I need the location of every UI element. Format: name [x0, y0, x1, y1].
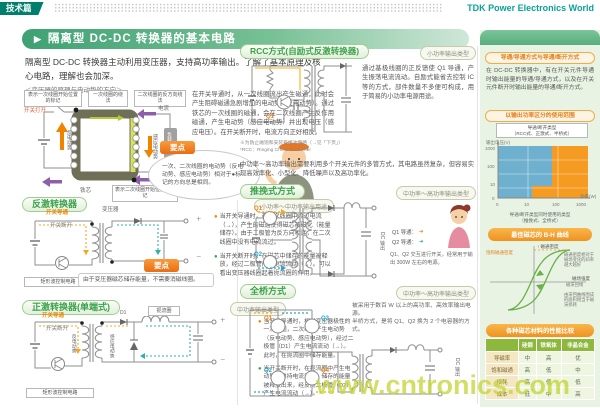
q2-transistor	[264, 256, 277, 269]
woman-bun	[464, 205, 471, 212]
fullbridge-title: 全桥方式	[240, 284, 296, 299]
bh-annotation-1: 磁通密度相对于磁场变化的斜率越大越好	[564, 252, 598, 267]
table-header-row: 硅钢 铁氧体 非晶合金	[486, 339, 595, 352]
q1-arrowhead	[281, 209, 286, 215]
off-arrowhead	[155, 250, 161, 255]
choke-coil	[344, 203, 360, 208]
flyback-point-note: 由于变压器磁芯储存能量，不需要消磁线圈。	[78, 273, 214, 287]
legend-q2: Q2 导通：➜	[392, 238, 423, 246]
bullet-dot-icon: ●	[214, 253, 218, 279]
core	[300, 208, 303, 274]
legend-q1-arrow-icon: ➜	[419, 229, 424, 235]
chart-callout: 导通/断开类型 （RCC式、正激式、半桥式）	[496, 123, 588, 138]
woman-eye2	[461, 216, 463, 218]
off-current-path	[140, 326, 190, 356]
pushpull-section: 推挽式方式 中功率～高功率输出类型	[240, 184, 476, 282]
q1-label: Q1	[254, 206, 263, 212]
core-ring	[76, 114, 134, 176]
sidebar-pill-modes: 导通/导通方式与导通/断开方式	[485, 52, 595, 64]
cell: 优	[561, 352, 594, 364]
bh-curve-up	[508, 250, 570, 310]
secondary-coil-top	[306, 212, 312, 239]
xtick-10: 10	[524, 202, 530, 207]
primary-coil-top	[292, 212, 298, 239]
pushpull-dc-out-label: DC 输出	[379, 232, 385, 251]
q2-transistor	[271, 371, 285, 385]
q1-transistor	[271, 319, 285, 333]
secondary-winding-label: 二次线圈的反方向绕法	[134, 90, 186, 107]
forward-switch-on-label: 开关导通	[42, 313, 64, 320]
capacitor	[341, 98, 351, 102]
base-capacitor	[294, 102, 298, 110]
q3-transistor	[305, 319, 319, 333]
legend-q1: Q1 导通：➜	[392, 228, 423, 236]
secondary-coil	[318, 70, 324, 94]
legend-q1-text: Q1 导通：	[392, 228, 417, 236]
rcc-note2: *RCC：Ringing Choke Converter	[240, 148, 311, 154]
resistor	[267, 70, 273, 89]
ytick-0: 0	[492, 196, 495, 201]
flyback-transformer-label: 变压器	[102, 207, 119, 214]
choke-coil	[142, 316, 169, 322]
pushpull-legend: Q1 导通：➜ Q2 导通：➜	[392, 228, 423, 248]
battery	[30, 344, 40, 348]
forward-d1-label: D1	[120, 310, 126, 316]
bh-left-label: 饱和磁通密度	[486, 249, 513, 256]
table-row: 导磁率 中 高 优	[486, 352, 595, 364]
induced-emf-label: 感应电动势	[152, 134, 158, 159]
xtick-100: 100	[552, 202, 560, 207]
flyback-switch-on-label: 开关导通	[46, 210, 68, 217]
dot-mark-secondary	[100, 321, 104, 325]
cell: 高	[536, 352, 561, 364]
choke-coil	[408, 345, 424, 350]
battery	[246, 350, 254, 354]
battery	[248, 96, 256, 100]
on-arrowhead	[83, 250, 89, 255]
primary-winding-label: 一次线圈的绕法	[88, 90, 128, 107]
cell: 中	[519, 352, 536, 364]
output-minus-terminal	[212, 360, 216, 364]
forward-title: 正激转换器(单端式)	[22, 300, 120, 315]
sidebar-header-band	[480, 30, 600, 45]
output-plus-terminal	[372, 206, 376, 210]
primary-coil	[304, 70, 310, 94]
capacitor	[361, 232, 371, 236]
diode-top	[328, 205, 334, 211]
ytick-1000: 1000	[485, 146, 496, 151]
battery	[30, 241, 40, 245]
current-label: 电流	[158, 106, 169, 113]
output-minus-label: －	[220, 358, 226, 365]
forward-choke-label: 扼流圈	[148, 306, 180, 316]
forward-switch-off-label: 开关断开	[46, 326, 68, 333]
diode	[134, 218, 141, 224]
primary-coil	[92, 227, 99, 259]
core	[312, 66, 315, 132]
chart-caption-line2: （推挽式、全桥式）	[519, 218, 560, 223]
table-col-ferrite: 铁氧体	[536, 339, 561, 352]
q2-label: Q2	[264, 368, 273, 374]
pushpull-badge: 中功率～高功率输出类型	[396, 186, 476, 200]
power-range-chart: 输出电压(V) 1000 100 10 0 0 10 100 1000 功率(W…	[484, 138, 596, 210]
rcc-body: 通过基极线圈的正反馈使 Q1 导通，产生振荡电流流动。自励式能省去控制 IC 等…	[362, 64, 474, 102]
switch-transistor	[52, 358, 65, 371]
bullet-dot-icon: ●	[214, 213, 218, 248]
bh-curve-header: 最佳磁芯的 B-H 曲线	[488, 228, 592, 241]
bh-x-label: 磁场强度	[572, 275, 590, 282]
bh-arrow-up	[536, 270, 544, 276]
legend-q2-text: Q2 导通：	[392, 238, 417, 246]
principle-point-tag: 要点	[160, 141, 195, 154]
woman-dress	[448, 227, 470, 248]
diode-d1	[120, 319, 127, 325]
capacitor	[160, 235, 168, 238]
chart-caption: 导通/断开类型同时使用的类型 （推挽式、全桥式）	[488, 212, 592, 223]
switch-open-label: 开关打开	[24, 108, 46, 115]
off-current-path	[117, 225, 158, 255]
primary-coil-bottom	[292, 242, 298, 268]
principle-point-text: 一次、二次线圈的电动势（反电动势、感应电动势）相对于●标记的方向总是相同。	[162, 163, 246, 187]
diode	[340, 63, 346, 69]
q1-label: Q1	[266, 114, 275, 120]
off-arrowhead	[140, 353, 145, 359]
section-tag: 技术篇	[0, 2, 44, 15]
rcc-section: RCC方式(自励式反激转换器) 小功率输出类型 Q1 通过基极线圈的正反馈使 Q…	[240, 44, 476, 156]
legend-q2-arrow-icon: ➜	[419, 239, 424, 245]
chart-callout-line1: 导通/断开类型	[528, 125, 557, 130]
ytick-10: 10	[490, 182, 496, 187]
switch-transistor	[56, 257, 69, 270]
secondary-coil-bottom	[306, 242, 312, 268]
brand-title: TDK Power Electronics World	[467, 3, 594, 13]
back-emf-label: 反电动势	[66, 130, 72, 150]
output-plus-terminal	[212, 320, 216, 324]
chart-callout-line2: （RCC式、正激式、半桥式）	[512, 131, 573, 136]
title-arrow-icon: ▶	[34, 34, 42, 44]
bh-annotation-3: 由滞回曲线围成的面积相当于磁滞损耗	[564, 292, 598, 307]
chart-xlabel: 功率(W)	[580, 193, 596, 200]
output-plus-terminal	[438, 348, 442, 352]
table-col-amorphous: 非晶合金	[561, 339, 594, 352]
primary-coil	[82, 326, 89, 358]
xtick-1000: 1000	[576, 202, 587, 207]
oscillation-path	[255, 68, 300, 90]
secondary-coil	[105, 227, 112, 259]
diode	[390, 347, 396, 353]
q2-label: Q2	[254, 252, 263, 258]
q3-label: Q3	[321, 316, 330, 322]
primary-start-mark	[74, 108, 79, 113]
chart-caption-line1: 导通/断开类型同时使用的类型	[510, 212, 571, 217]
rcc-circuit-svg: Q1	[240, 62, 356, 138]
q1-transistor	[264, 212, 277, 225]
battery	[38, 140, 50, 144]
magazine-page: 技术篇 TDK Power Electronics World ▶隔离型 DC-…	[0, 0, 600, 408]
fullbridge-badge: 中功率～高功率输出类型	[396, 286, 476, 300]
woman-illustration	[442, 202, 476, 248]
rcc-badge: 小功率输出类型	[420, 46, 476, 60]
sidebar-pill-range: 以输出功率区分的使用范围	[485, 110, 595, 122]
dot-mark-primary	[80, 321, 84, 325]
table-col-blank	[486, 339, 519, 352]
forward-induced-emf-label: 感应电动势	[108, 334, 114, 358]
woman-eye	[455, 216, 457, 218]
output-minus-label: －	[196, 255, 202, 262]
forward-back-emf-label: 反电动势	[70, 334, 76, 353]
battery	[252, 238, 260, 242]
bh-top-label: ↑ 磁通密度	[537, 243, 559, 250]
output-plus-terminal	[184, 219, 188, 223]
sidebar-text-modes: 在 DC-DC 转换器中，有在开关元件导通时输出能量的导通/导通方式，以及在开关…	[486, 67, 594, 93]
xtick-0: 0	[496, 202, 499, 207]
material-table-header: 各种磁芯材料的性能比较	[486, 324, 594, 337]
base-winding	[304, 106, 310, 118]
secondary-coil	[95, 326, 102, 358]
bh-curve-down	[508, 250, 570, 310]
secondary-start-mark	[132, 178, 137, 183]
flyback-switch-off-label: 开关断开	[50, 223, 72, 230]
core	[100, 223, 103, 263]
pushpull-caption: Q1、Q2 交互进行开关，经常用于输出 300W 左右的电源。	[390, 252, 474, 267]
column-divider-right	[477, 46, 478, 404]
page-title: 隔离型 DC-DC 转换器的基本电路	[48, 33, 236, 45]
primary-mark-label: 表示一次线圈开始位置的标记	[24, 90, 82, 107]
output-minus-terminal	[372, 274, 376, 278]
dot-mark-secondary	[110, 260, 114, 264]
core-label: 铁芯	[80, 188, 91, 195]
row-label: 导磁率	[486, 352, 519, 364]
q1-transistor	[277, 95, 291, 109]
table-col-silicon-steel: 硅钢	[519, 339, 536, 352]
q2-arrowhead	[281, 265, 286, 271]
output-minus-terminal	[184, 259, 188, 263]
watermark: www.cntronics.com	[316, 370, 570, 401]
pushpull-circuit-svg: Q1 Q2	[240, 202, 390, 280]
q1-label: Q1	[264, 316, 273, 322]
output-plus-label: ＋	[220, 318, 226, 325]
dot-mark-primary	[90, 222, 94, 226]
mid-paragraph: 中功率～高功率输出需要利用多个开关元件的多管方式，其电路虽然复杂，但容易实现高效…	[240, 160, 474, 179]
sidebar-panel: 导通/导通方式与导通/断开方式 在 DC-DC 转换器中，有在开关元件导通时输出…	[480, 30, 600, 407]
forward-control-label: 矩形波控制电路	[26, 388, 94, 398]
freewheel-diode	[130, 340, 138, 350]
output-plus-label: ＋	[196, 217, 202, 224]
pushpull-title: 推挽式方式	[240, 184, 305, 199]
flyback-point-tag: 要点	[144, 259, 179, 272]
capacitor	[193, 336, 203, 340]
ytick-100: 100	[487, 164, 495, 169]
dotted-divider	[54, 3, 442, 13]
rcc-title: RCC方式(自励式反激转换器)	[240, 44, 369, 59]
bh-annotation-2: 磁滞回线	[566, 282, 598, 287]
core	[90, 324, 93, 362]
rcc-note1: ※为防止磁饱和安装有缓冲电路（→见「下页」）	[240, 141, 343, 147]
